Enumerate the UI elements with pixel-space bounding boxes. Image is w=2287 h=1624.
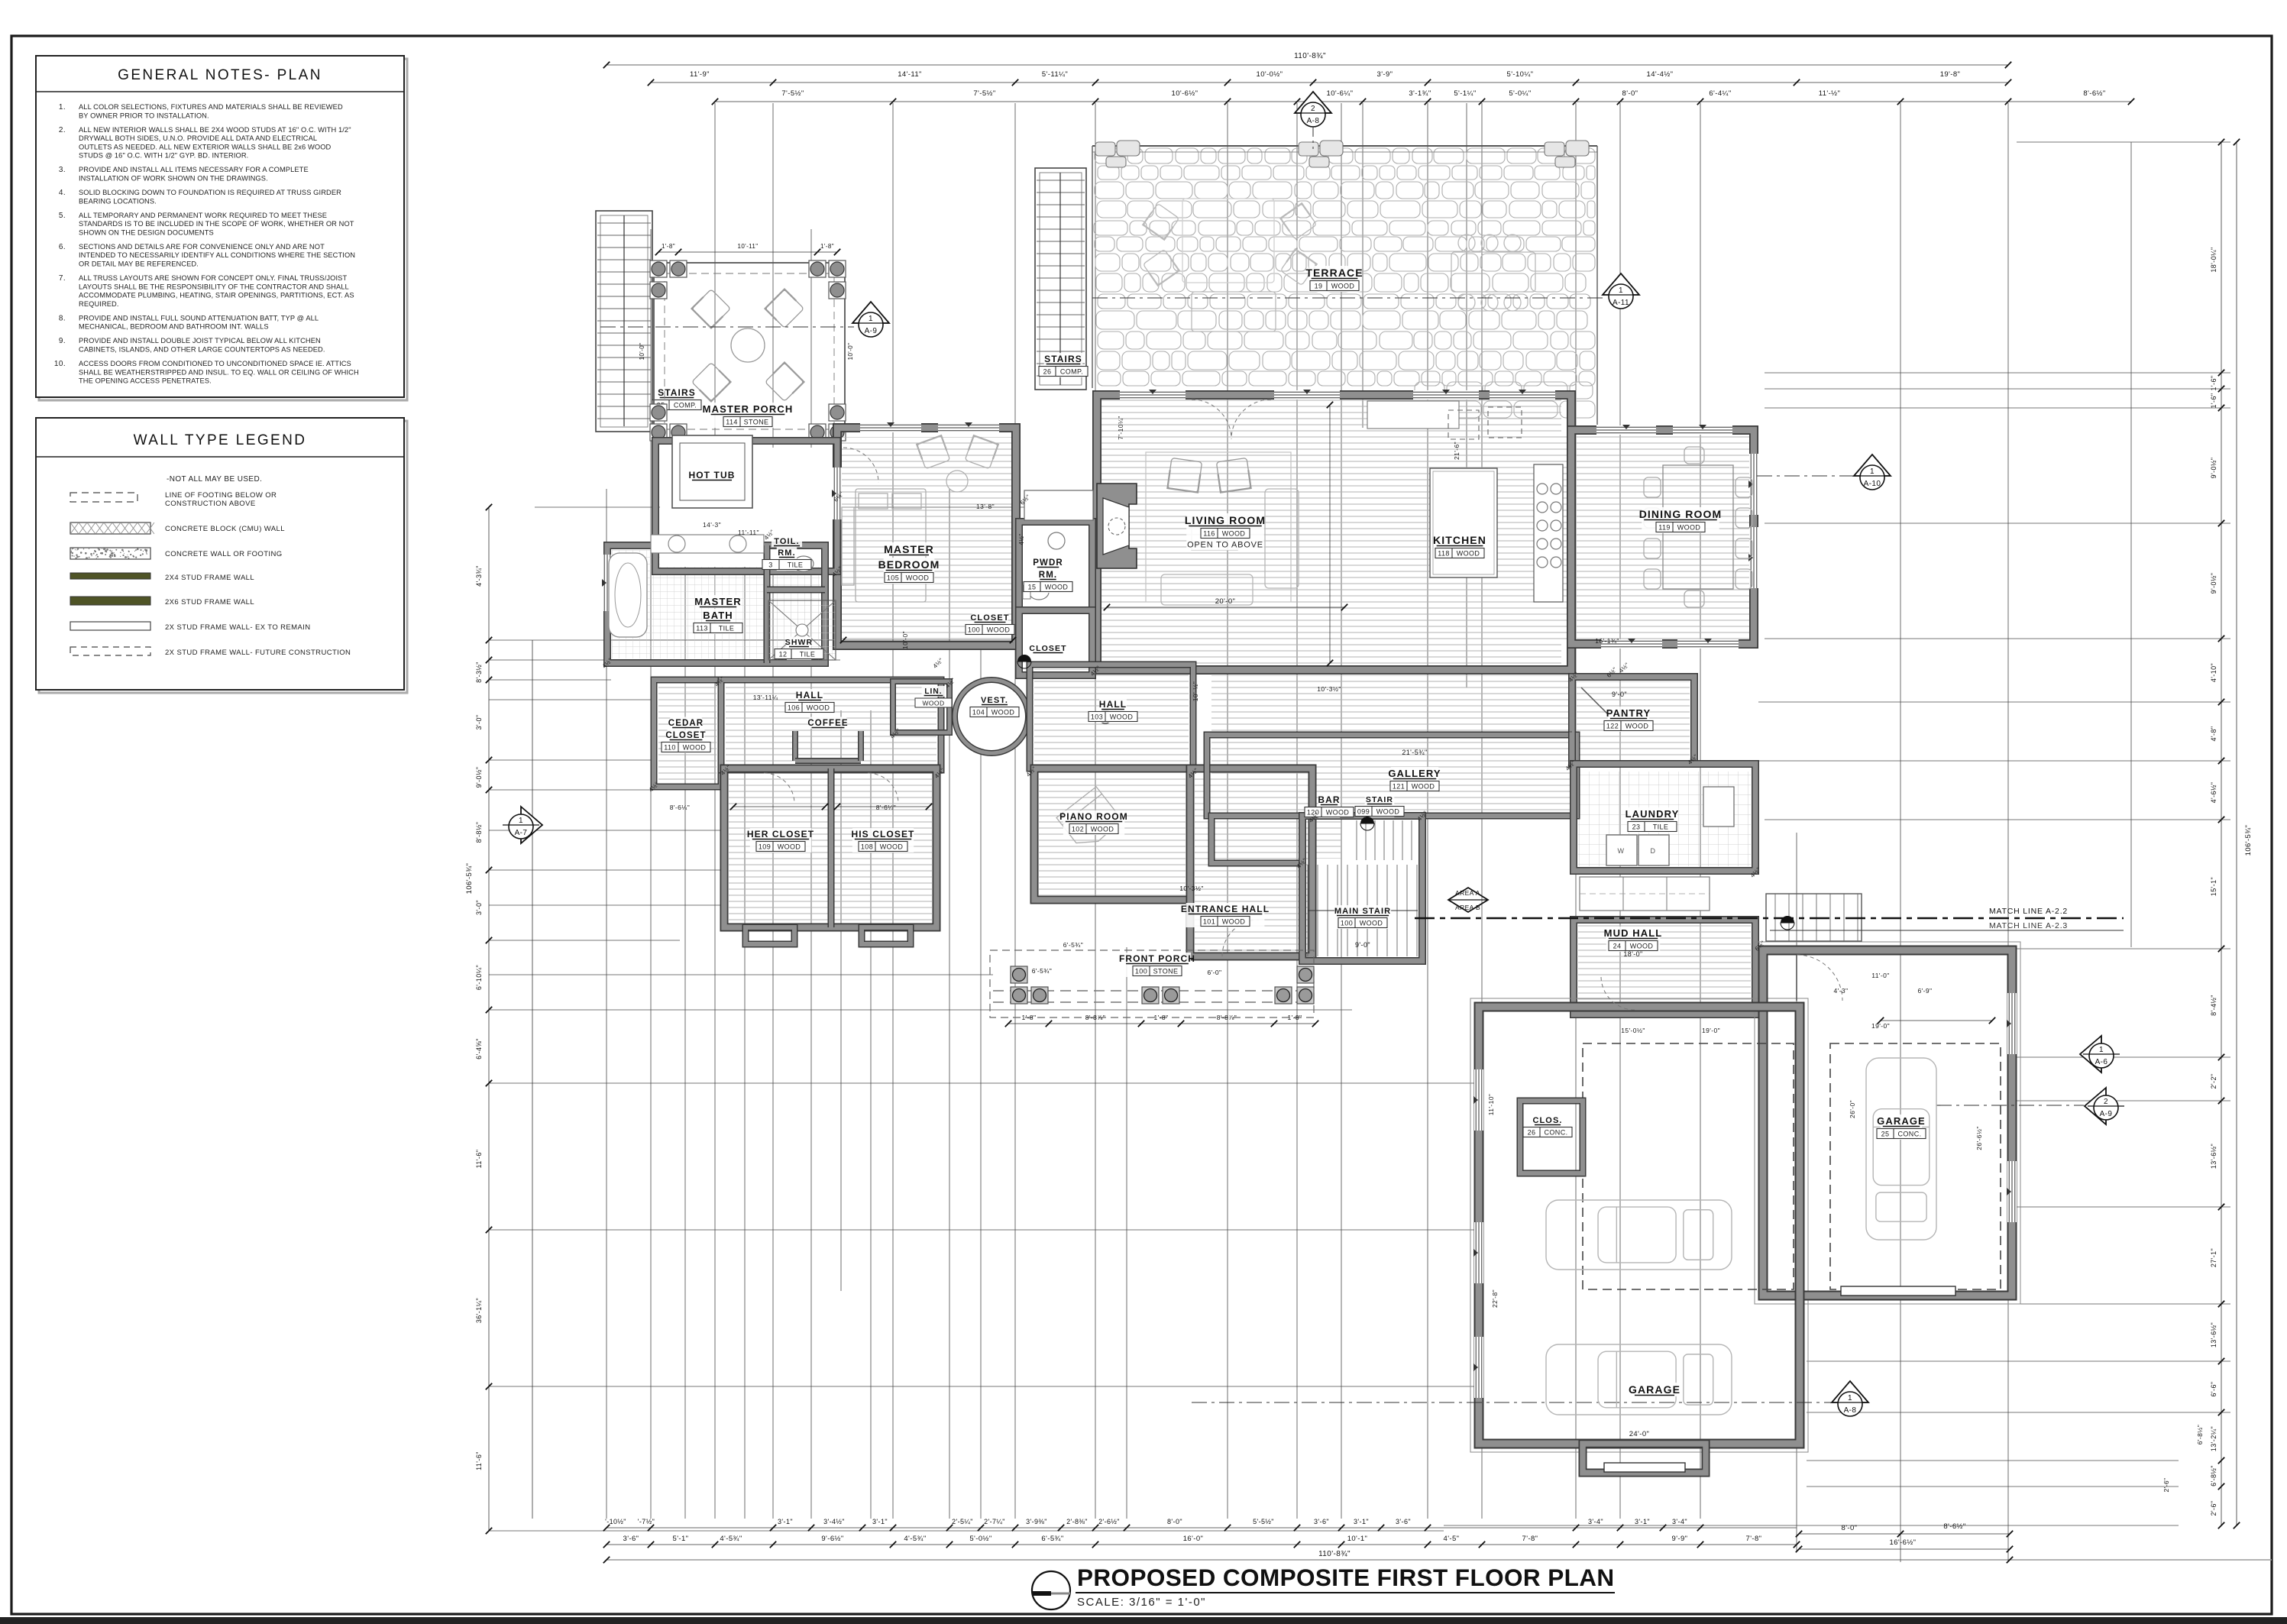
svg-text:6.: 6.	[59, 243, 66, 251]
svg-text:15'-0½": 15'-0½"	[1621, 1027, 1645, 1034]
svg-text:15'-1": 15'-1"	[2210, 877, 2217, 896]
svg-text:3'-1": 3'-1"	[872, 1518, 888, 1525]
svg-text:DINING ROOM: DINING ROOM	[1639, 508, 1723, 520]
svg-text:STAIRS: STAIRS	[658, 387, 696, 398]
svg-text:REQUIRED.: REQUIRED.	[79, 300, 119, 308]
svg-text:WOOD: WOOD	[1222, 530, 1246, 538]
svg-text:2'-6": 2'-6"	[2210, 1501, 2217, 1516]
svg-text:HIS CLOSET: HIS CLOSET	[851, 829, 914, 839]
svg-text:103: 103	[1091, 713, 1103, 721]
svg-text:4'-10": 4'-10"	[2210, 663, 2217, 682]
svg-text:2X6 STUD FRAME WALL: 2X6 STUD FRAME WALL	[165, 598, 254, 607]
svg-text:106: 106	[788, 704, 800, 712]
svg-text:4'-5¾": 4'-5¾"	[720, 1535, 742, 1543]
svg-text:ACCESS DOORS FROM CONDITIONED: ACCESS DOORS FROM CONDITIONED TO UNCONDI…	[79, 360, 351, 367]
svg-text:16'-0": 16'-0"	[1183, 1535, 1204, 1543]
svg-text:5'-0¼": 5'-0¼"	[1509, 89, 1531, 98]
svg-text:24'-0": 24'-0"	[1629, 1430, 1650, 1438]
svg-text:WOOD: WOOD	[1222, 918, 1246, 926]
svg-text:6'-5¾": 6'-5¾"	[1041, 1535, 1063, 1543]
svg-text:CONSTRUCTION ABOVE: CONSTRUCTION ABOVE	[165, 500, 256, 508]
svg-text:7'-5½": 7'-5½"	[973, 89, 995, 98]
svg-text:36'-1¼": 36'-1¼"	[475, 1298, 483, 1323]
svg-text:MATCH LINE A-2.3: MATCH LINE A-2.3	[1989, 921, 2068, 930]
svg-text:8'-0": 8'-0"	[1622, 89, 1638, 98]
svg-text:CLOSET: CLOSET	[970, 613, 1009, 623]
svg-text:19: 19	[1315, 283, 1323, 290]
svg-text:1'-8": 1'-8"	[1022, 1014, 1037, 1021]
svg-text:WOOD: WOOD	[991, 709, 1015, 717]
svg-text:6'-8½": 6'-8½"	[2210, 1465, 2217, 1487]
svg-text:CONC.: CONC.	[1545, 1129, 1568, 1137]
svg-text:3'-4": 3'-4"	[1588, 1518, 1603, 1525]
svg-text:MUD HALL: MUD HALL	[1604, 927, 1663, 939]
svg-text:TERRACE: TERRACE	[1305, 267, 1363, 279]
svg-text:122: 122	[1606, 723, 1619, 730]
svg-text:3'-1": 3'-1"	[1354, 1518, 1369, 1525]
svg-text:WOOD: WOOD	[1630, 943, 1654, 950]
svg-text:8'-8½": 8'-8½"	[475, 822, 483, 843]
svg-text:26'-6½": 26'-6½"	[1975, 1126, 1983, 1150]
svg-text:3'-6": 3'-6"	[1396, 1518, 1411, 1525]
svg-text:1: 1	[1870, 467, 1875, 476]
svg-text:A-11: A-11	[1613, 299, 1629, 307]
svg-text:TILE: TILE	[719, 625, 735, 632]
svg-text:100: 100	[1341, 920, 1353, 927]
svg-text:5'-11¼": 5'-11¼"	[1042, 70, 1068, 79]
svg-text:9'-0½": 9'-0½"	[475, 767, 483, 788]
svg-text:10'-0": 10'-0"	[639, 343, 645, 361]
svg-text:3'-0": 3'-0"	[475, 900, 483, 915]
svg-text:5'-5½": 5'-5½"	[1253, 1518, 1274, 1525]
svg-text:13'-6½": 13'-6½"	[2210, 1144, 2217, 1169]
svg-text:11'-6": 11'-6"	[475, 1451, 483, 1470]
svg-text:16'-6½": 16'-6½"	[1890, 1538, 1917, 1547]
svg-text:11'-11": 11'-11"	[738, 529, 759, 536]
svg-text:100: 100	[1135, 968, 1147, 975]
svg-text:WOOD: WOOD	[1677, 524, 1701, 532]
svg-text:CABINETS, ISLANDS, AND OTHER L: CABINETS, ISLANDS, AND OTHER LARGE COUNT…	[79, 346, 325, 354]
svg-text:4'-3": 4'-3"	[1834, 987, 1849, 995]
svg-text:HOT TUB: HOT TUB	[688, 470, 735, 480]
svg-text:6'-0": 6'-0"	[1208, 969, 1222, 976]
svg-text:MECHANICAL, BEDROOM AND BATHRO: MECHANICAL, BEDROOM AND BATHROOM INT. WA…	[79, 323, 269, 331]
svg-text:HALL: HALL	[796, 690, 823, 700]
svg-text:PWDR: PWDR	[1033, 558, 1063, 568]
svg-text:5'-1¼": 5'-1¼"	[1454, 89, 1476, 98]
svg-text:-NOT ALL MAY BE USED.: -NOT ALL MAY BE USED.	[167, 475, 262, 484]
svg-text:2'-2": 2'-2"	[2210, 1074, 2217, 1089]
svg-text:CLOS.: CLOS.	[1532, 1116, 1562, 1125]
svg-text:BEARING LOCATIONS.: BEARING LOCATIONS.	[79, 197, 157, 205]
svg-text:A-9: A-9	[2100, 1110, 2113, 1118]
svg-text:16'-1¾": 16'-1¾"	[1595, 637, 1619, 645]
svg-text:PROVIDE AND INSTALL FULL SOUND: PROVIDE AND INSTALL FULL SOUND ATTENUATI…	[79, 314, 319, 322]
svg-text:'-7½": '-7½"	[638, 1518, 655, 1525]
svg-text:TILE: TILE	[1653, 823, 1669, 831]
svg-text:23: 23	[1632, 823, 1641, 831]
svg-text:9.: 9.	[59, 337, 66, 345]
svg-text:RM.: RM.	[1039, 571, 1057, 580]
svg-text:1'-6": 1'-6"	[2210, 376, 2217, 391]
svg-text:W: W	[1618, 847, 1625, 855]
svg-text:116: 116	[1203, 530, 1215, 538]
svg-text:3'-1": 3'-1"	[778, 1518, 793, 1525]
svg-text:A-8: A-8	[1307, 117, 1320, 125]
svg-text:FRONT PORCH: FRONT PORCH	[1119, 953, 1195, 964]
svg-text:8'-6¼": 8'-6¼"	[876, 804, 896, 811]
svg-text:AREA B: AREA B	[1455, 904, 1480, 911]
svg-text:3: 3	[768, 561, 772, 569]
svg-text:19'-8": 19'-8"	[1940, 70, 1961, 79]
svg-text:TOIL.: TOIL.	[774, 537, 799, 546]
svg-text:10'-0": 10'-0"	[847, 343, 854, 361]
svg-text:7'-10¼": 7'-10¼"	[1117, 416, 1124, 440]
svg-text:CLOSET: CLOSET	[665, 731, 706, 740]
svg-text:ENTRANCE HALL: ENTRANCE HALL	[1181, 904, 1270, 914]
svg-text:8'-8⅞": 8'-8⅞"	[1085, 1014, 1105, 1021]
svg-text:18'-0¼": 18'-0¼"	[2210, 247, 2217, 272]
svg-text:SHOWN ON THE DESIGN DOCUMENTS: SHOWN ON THE DESIGN DOCUMENTS	[79, 228, 214, 236]
svg-text:WALL TYPE LEGEND: WALL TYPE LEGEND	[134, 432, 307, 448]
svg-text:1'-8": 1'-8"	[662, 243, 675, 250]
svg-text:A-8: A-8	[1844, 1406, 1857, 1415]
svg-text:LAYOUTS SHALL BE THE RESPONSIB: LAYOUTS SHALL BE THE RESPONSIBILITY OF T…	[79, 283, 349, 290]
svg-text:4'-5": 4'-5"	[1444, 1535, 1460, 1543]
svg-text:6'-4¼": 6'-4¼"	[1709, 89, 1731, 98]
svg-text:3'-1¾": 3'-1¾"	[1409, 89, 1431, 98]
svg-text:26'-0": 26'-0"	[1849, 1100, 1856, 1118]
svg-text:26: 26	[1043, 368, 1052, 376]
svg-text:DRYWALL BOTH SIDES, U.N.O. PR: DRYWALL BOTH SIDES, U.N.O. PROVIDE ALL D…	[79, 134, 317, 142]
svg-text:SOLID BLOCKING DOWN TO FOUNDAT: SOLID BLOCKING DOWN TO FOUNDATION IS REQ…	[79, 189, 341, 196]
svg-text:6'-5¾": 6'-5¾"	[1063, 941, 1083, 949]
svg-text:PROVIDE AND INSTALL DOUBLE JOI: PROVIDE AND INSTALL DOUBLE JOIST TYPICAL…	[79, 337, 321, 345]
svg-text:PROPOSED COMPOSITE FIRST FLOOR: PROPOSED COMPOSITE FIRST FLOOR PLAN	[1077, 1564, 1615, 1591]
svg-text:2X4 STUD FRAME WALL: 2X4 STUD FRAME WALL	[165, 574, 254, 582]
svg-text:WOOD: WOOD	[1331, 283, 1355, 290]
svg-text:14'-3": 14'-3"	[703, 521, 721, 529]
svg-text:114: 114	[726, 419, 738, 426]
svg-text:LAUNDRY: LAUNDRY	[1625, 808, 1680, 820]
svg-text:3'-0": 3'-0"	[475, 715, 483, 730]
svg-text:WOOD: WOOD	[1412, 783, 1435, 791]
svg-text:106'-5¾": 106'-5¾"	[465, 863, 474, 894]
svg-text:8'-0": 8'-0"	[1167, 1518, 1182, 1525]
svg-text:11'-10": 11'-10"	[1487, 1094, 1495, 1116]
svg-text:CLOSET: CLOSET	[1029, 644, 1066, 653]
svg-text:14'-4½": 14'-4½"	[1647, 70, 1674, 79]
svg-text:121: 121	[1393, 783, 1405, 791]
svg-text:4'-8": 4'-8"	[2210, 726, 2217, 742]
svg-text:OPEN TO ABOVE: OPEN TO ABOVE	[1187, 541, 1263, 550]
svg-text:8.: 8.	[59, 314, 66, 322]
svg-text:A-7: A-7	[515, 829, 528, 837]
svg-text:HALL: HALL	[1099, 699, 1127, 710]
svg-text:2'-8⅜": 2'-8⅜"	[1066, 1518, 1088, 1525]
svg-text:2'-6½": 2'-6½"	[1098, 1518, 1120, 1525]
svg-text:3'-6": 3'-6"	[1314, 1518, 1329, 1525]
svg-text:20'-0": 20'-0"	[1215, 597, 1236, 606]
svg-text:SHWR: SHWR	[785, 638, 813, 647]
svg-text:8'-3½": 8'-3½"	[475, 662, 483, 683]
svg-text:7'-5½": 7'-5½"	[781, 89, 804, 98]
svg-text:WOOD: WOOD	[778, 843, 801, 851]
svg-text:THE OPENING ACCESS PENETRATES.: THE OPENING ACCESS PENETRATES.	[79, 377, 212, 385]
svg-text:WOOD: WOOD	[807, 704, 830, 712]
svg-text:'-10½": '-10½"	[605, 1518, 626, 1525]
svg-text:106'-5¾": 106'-5¾"	[2244, 825, 2253, 856]
svg-text:CEDAR: CEDAR	[668, 719, 704, 728]
svg-text:1: 1	[869, 315, 873, 323]
svg-text:STONE: STONE	[1153, 968, 1179, 975]
svg-text:110: 110	[664, 744, 676, 752]
svg-text:3'-9": 3'-9"	[1377, 70, 1393, 79]
svg-text:WOOD: WOOD	[987, 626, 1011, 634]
svg-text:LINE OF FOOTING BELOW OR: LINE OF FOOTING BELOW OR	[165, 491, 277, 500]
svg-text:1: 1	[519, 817, 523, 825]
svg-text:SHALL BE WEATHERSTRIPPED AND I: SHALL BE WEATHERSTRIPPED AND INSUL. TO E…	[79, 368, 359, 376]
svg-text:10'-6¼": 10'-6¼"	[1327, 89, 1354, 98]
svg-text:18'-0": 18'-0"	[1623, 950, 1642, 958]
svg-text:ALL COLOR SELECTIONS, FIXTURES: ALL COLOR SELECTIONS, FIXTURES AND MATER…	[79, 103, 343, 111]
svg-text:1: 1	[1619, 286, 1623, 295]
svg-text:3.: 3.	[59, 166, 66, 174]
svg-text:9'-0½": 9'-0½"	[2210, 458, 2217, 479]
svg-text:3'-1": 3'-1"	[1635, 1518, 1650, 1525]
svg-text:5'-10¼": 5'-10¼"	[1507, 70, 1534, 79]
svg-text:BEDROOM: BEDROOM	[878, 558, 940, 571]
svg-text:AREA A: AREA A	[1455, 889, 1480, 897]
svg-text:10'-3½": 10'-3½"	[1179, 885, 1204, 892]
svg-text:6'-4⅝": 6'-4⅝"	[475, 1038, 483, 1059]
svg-text:19'-0": 19'-0"	[1871, 1022, 1890, 1030]
svg-text:WOOD: WOOD	[1457, 550, 1480, 558]
svg-text:22'-8": 22'-8"	[1491, 1289, 1499, 1308]
svg-text:COFFEE: COFFEE	[807, 719, 848, 728]
svg-text:1'-8": 1'-8"	[1288, 1014, 1302, 1021]
svg-text:27'-1": 27'-1"	[2210, 1248, 2217, 1267]
svg-text:13'-11¼: 13'-11¼	[753, 694, 778, 701]
svg-text:104: 104	[972, 709, 985, 717]
svg-text:2'-5¼": 2'-5¼"	[952, 1518, 973, 1525]
svg-text:BAR: BAR	[1318, 794, 1340, 805]
svg-text:5.: 5.	[59, 212, 66, 220]
svg-text:4.: 4.	[59, 189, 66, 197]
svg-text:119: 119	[1658, 524, 1671, 532]
svg-text:19'-0": 19'-0"	[1702, 1027, 1720, 1034]
svg-text:101: 101	[1203, 918, 1215, 926]
svg-text:11'-½": 11'-½"	[1819, 89, 1841, 98]
svg-text:118: 118	[1438, 550, 1450, 558]
svg-text:WOOD: WOOD	[1625, 723, 1649, 730]
svg-text:10.: 10.	[54, 360, 66, 368]
svg-text:6'-8½": 6'-8½"	[2196, 1425, 2204, 1444]
svg-text:7'-8": 7'-8"	[1746, 1535, 1762, 1543]
svg-text:HER CLOSET: HER CLOSET	[747, 829, 814, 839]
svg-text:1'-8": 1'-8"	[820, 243, 834, 250]
svg-text:13'-6½": 13'-6½"	[2210, 1322, 2217, 1347]
svg-text:4'-5¾": 4'-5¾"	[904, 1535, 926, 1543]
svg-text:CONCRETE BLOCK (CMU) WALL: CONCRETE BLOCK (CMU) WALL	[165, 525, 285, 533]
svg-text:2'-6": 2'-6"	[2162, 1478, 2170, 1493]
svg-text:BY OWNER PRIOR TO INSTALLATION: BY OWNER PRIOR TO INSTALLATION.	[79, 112, 209, 119]
svg-text:2X STUD FRAME WALL- EX TO REMA: 2X STUD FRAME WALL- EX TO REMAIN	[165, 623, 311, 632]
svg-text:ALL TRUSS LAYOUTS ARE SHOWN FO: ALL TRUSS LAYOUTS ARE SHOWN FOR CONCEPT …	[79, 274, 347, 282]
svg-text:15: 15	[1028, 584, 1037, 591]
svg-text:TILE: TILE	[800, 651, 816, 658]
svg-text:1'-6": 1'-6"	[2210, 393, 2217, 409]
svg-text:MATCH LINE A-2.2: MATCH LINE A-2.2	[1989, 907, 2068, 916]
svg-text:3'-4": 3'-4"	[1672, 1518, 1687, 1525]
svg-text:LIVING ROOM: LIVING ROOM	[1185, 514, 1266, 526]
svg-text:STAIRS: STAIRS	[1044, 354, 1082, 364]
svg-text:3'-4½": 3'-4½"	[823, 1518, 845, 1525]
svg-text:21'-6": 21'-6"	[1453, 442, 1461, 460]
svg-text:SECTIONS AND DETAILS ARE FOR: SECTIONS AND DETAILS ARE FOR CONVENIENCE…	[79, 243, 325, 251]
svg-text:11'-0": 11'-0"	[1871, 972, 1889, 979]
svg-text:099: 099	[1357, 808, 1370, 816]
svg-text:MASTER: MASTER	[694, 596, 742, 607]
svg-text:113: 113	[696, 625, 708, 632]
svg-text:OR DETAIL MAY BE REFERENCED.: OR DETAIL MAY BE REFERENCED.	[79, 260, 199, 268]
svg-text:110'-8¾": 110'-8¾"	[1318, 1550, 1351, 1558]
svg-text:SCALE: 3/16" = 1'-0": SCALE: 3/16" = 1'-0"	[1077, 1596, 1206, 1609]
svg-text:6'-5¾": 6'-5¾"	[1032, 967, 1052, 975]
svg-text:WOOD: WOOD	[1091, 826, 1114, 833]
svg-text:2.: 2.	[59, 126, 66, 134]
svg-text:4'-6½": 4'-6½"	[2210, 782, 2217, 804]
svg-text:110'-8¾": 110'-8¾"	[1294, 52, 1326, 60]
svg-text:10'-3½": 10'-3½"	[1317, 685, 1341, 693]
svg-text:8'-4½": 8'-4½"	[2210, 995, 2217, 1016]
svg-text:6'-6": 6'-6"	[2210, 1382, 2217, 1397]
svg-text:ALL TEMPORARY AND PERMANENT WO: ALL TEMPORARY AND PERMANENT WORK REQUIRE…	[79, 212, 327, 219]
svg-text:8'-0": 8'-0"	[1842, 1524, 1858, 1532]
svg-text:11'-9": 11'-9"	[690, 70, 710, 79]
svg-text:26: 26	[1528, 1129, 1536, 1137]
svg-text:PROVIDE AND INSTALL ALL ITEMS: PROVIDE AND INSTALL ALL ITEMS NECESSARY …	[79, 166, 309, 173]
svg-text:COMP.: COMP.	[1060, 368, 1083, 376]
svg-text:VEST.: VEST.	[981, 696, 1008, 705]
svg-text:2: 2	[2104, 1098, 2108, 1106]
svg-text:WOOD: WOOD	[1110, 713, 1134, 721]
svg-text:3'-6": 3'-6"	[623, 1535, 639, 1543]
svg-text:8'-6¼": 8'-6¼"	[670, 804, 690, 811]
svg-text:STANDARDS IS TO BE INCLUDED IN: STANDARDS IS TO BE INCLUDED IN THE SCOPE…	[79, 220, 354, 228]
svg-text:11'-6": 11'-6"	[475, 1150, 483, 1169]
svg-text:WOOD: WOOD	[1360, 920, 1383, 927]
svg-text:INSTALLATION OF WORK SHOWN ON: INSTALLATION OF WORK SHOWN ON THE DRAWIN…	[79, 175, 268, 183]
svg-text:STUDS @ 16" O.C. WITH 1/2" GYP: STUDS @ 16" O.C. WITH 1/2" GYP. BD. INTE…	[79, 152, 248, 160]
svg-text:GENERAL NOTES- PLAN: GENERAL NOTES- PLAN	[118, 67, 322, 83]
svg-text:100: 100	[968, 626, 980, 634]
svg-text:GARAGE: GARAGE	[1629, 1383, 1680, 1396]
svg-text:21'-5¾": 21'-5¾"	[1402, 749, 1427, 756]
svg-text:GALLERY: GALLERY	[1388, 768, 1441, 779]
svg-text:WOOD: WOOD	[683, 744, 707, 752]
svg-text:TILE: TILE	[788, 561, 804, 569]
svg-text:RM.: RM.	[778, 548, 795, 558]
svg-text:109: 109	[759, 843, 771, 851]
svg-text:5'-1": 5'-1"	[673, 1535, 689, 1543]
svg-text:WOOD: WOOD	[923, 700, 945, 707]
svg-text:8'-8⅞": 8'-8⅞"	[1217, 1014, 1237, 1021]
svg-text:STONE: STONE	[744, 419, 769, 426]
svg-text:10'-1": 10'-1"	[1347, 1535, 1368, 1543]
svg-text:WOOD: WOOD	[1376, 808, 1400, 816]
svg-text:ACCOMMODATE PLUMBING, HEATING,: ACCOMMODATE PLUMBING, HEATING, STAIR OPE…	[79, 292, 354, 299]
svg-text:PANTRY: PANTRY	[1606, 707, 1651, 719]
svg-text:10'-0½": 10'-0½"	[1257, 70, 1283, 79]
svg-text:25: 25	[1881, 1131, 1890, 1138]
svg-text:108: 108	[861, 843, 873, 851]
svg-text:3'-9⅜": 3'-9⅜"	[1026, 1518, 1047, 1525]
svg-text:2'-7¼": 2'-7¼"	[984, 1518, 1005, 1525]
svg-text:6'-9": 6'-9"	[1918, 987, 1933, 995]
svg-text:1: 1	[2099, 1046, 2104, 1054]
svg-text:10'-½": 10'-½"	[1192, 681, 1199, 701]
svg-text:INTENDED TO NECESSARILY IDENTI: INTENDED TO NECESSARILY IDENTIFY ALL CON…	[79, 251, 355, 259]
svg-text:14'-11": 14'-11"	[898, 70, 922, 79]
svg-text:105: 105	[887, 574, 899, 582]
svg-text:6'-10¼": 6'-10¼"	[475, 965, 483, 990]
svg-text:1'-8": 1'-8"	[1154, 1014, 1169, 1021]
svg-text:MASTER PORCH: MASTER PORCH	[703, 403, 794, 415]
svg-text:1: 1	[1848, 1394, 1852, 1402]
svg-text:MAIN STAIR: MAIN STAIR	[1334, 907, 1391, 916]
svg-text:A-6: A-6	[2095, 1058, 2108, 1066]
svg-text:8'-6½": 8'-6½"	[1943, 1522, 1965, 1531]
svg-text:1.: 1.	[59, 103, 66, 112]
svg-text:WOOD: WOOD	[1326, 809, 1350, 817]
svg-text:9'-0": 9'-0"	[1612, 691, 1627, 698]
svg-text:102: 102	[1072, 826, 1084, 833]
svg-text:WOOD: WOOD	[1045, 584, 1069, 591]
svg-text:OUTLETS AS NEEDED. ALL NEW EXT: OUTLETS AS NEEDED. ALL NEW EXTERIOR WALL…	[79, 143, 332, 150]
svg-text:7.: 7.	[59, 274, 66, 283]
svg-text:12: 12	[779, 651, 788, 658]
svg-text:COMP.: COMP.	[674, 402, 697, 409]
svg-text:9'-0½": 9'-0½"	[2210, 573, 2217, 594]
svg-text:5'-0½": 5'-0½"	[969, 1535, 991, 1543]
svg-text:13'-8": 13'-8"	[976, 503, 995, 510]
svg-text:MASTER: MASTER	[884, 543, 934, 555]
svg-text:9'-0": 9'-0"	[1355, 941, 1370, 949]
svg-text:8'-6½": 8'-6½"	[2083, 89, 2105, 98]
svg-text:STAIR: STAIR	[1366, 795, 1393, 804]
svg-text:13'-2¼": 13'-2¼"	[2210, 1426, 2217, 1451]
svg-text:CONCRETE WALL OR FOOTING: CONCRETE WALL OR FOOTING	[165, 550, 283, 558]
svg-text:ALL NEW INTERIOR WALLS SHALL B: ALL NEW INTERIOR WALLS SHALL BE 2X4 WOOD…	[79, 126, 351, 134]
svg-text:A-9: A-9	[865, 327, 878, 335]
svg-text:D: D	[1651, 847, 1656, 855]
svg-text:A-10: A-10	[1864, 480, 1881, 488]
svg-text:WOOD: WOOD	[906, 574, 930, 582]
svg-text:KITCHEN: KITCHEN	[1433, 534, 1486, 546]
svg-text:4'-3¾": 4'-3¾"	[475, 565, 483, 587]
svg-text:10'-6½": 10'-6½"	[1172, 89, 1198, 98]
svg-text:24: 24	[1613, 943, 1622, 950]
svg-text:GARAGE: GARAGE	[1877, 1115, 1926, 1127]
svg-text:CONC.: CONC.	[1898, 1131, 1922, 1138]
svg-text:2X STUD FRAME WALL- FUTURE CON: 2X STUD FRAME WALL- FUTURE CONSTRUCTION	[165, 649, 351, 657]
svg-text:10'-0": 10'-0"	[901, 631, 909, 649]
svg-text:2: 2	[1311, 105, 1315, 113]
svg-text:10'-11": 10'-11"	[737, 243, 758, 250]
svg-text:LIN.: LIN.	[924, 687, 942, 696]
svg-text:BATH: BATH	[703, 610, 733, 621]
